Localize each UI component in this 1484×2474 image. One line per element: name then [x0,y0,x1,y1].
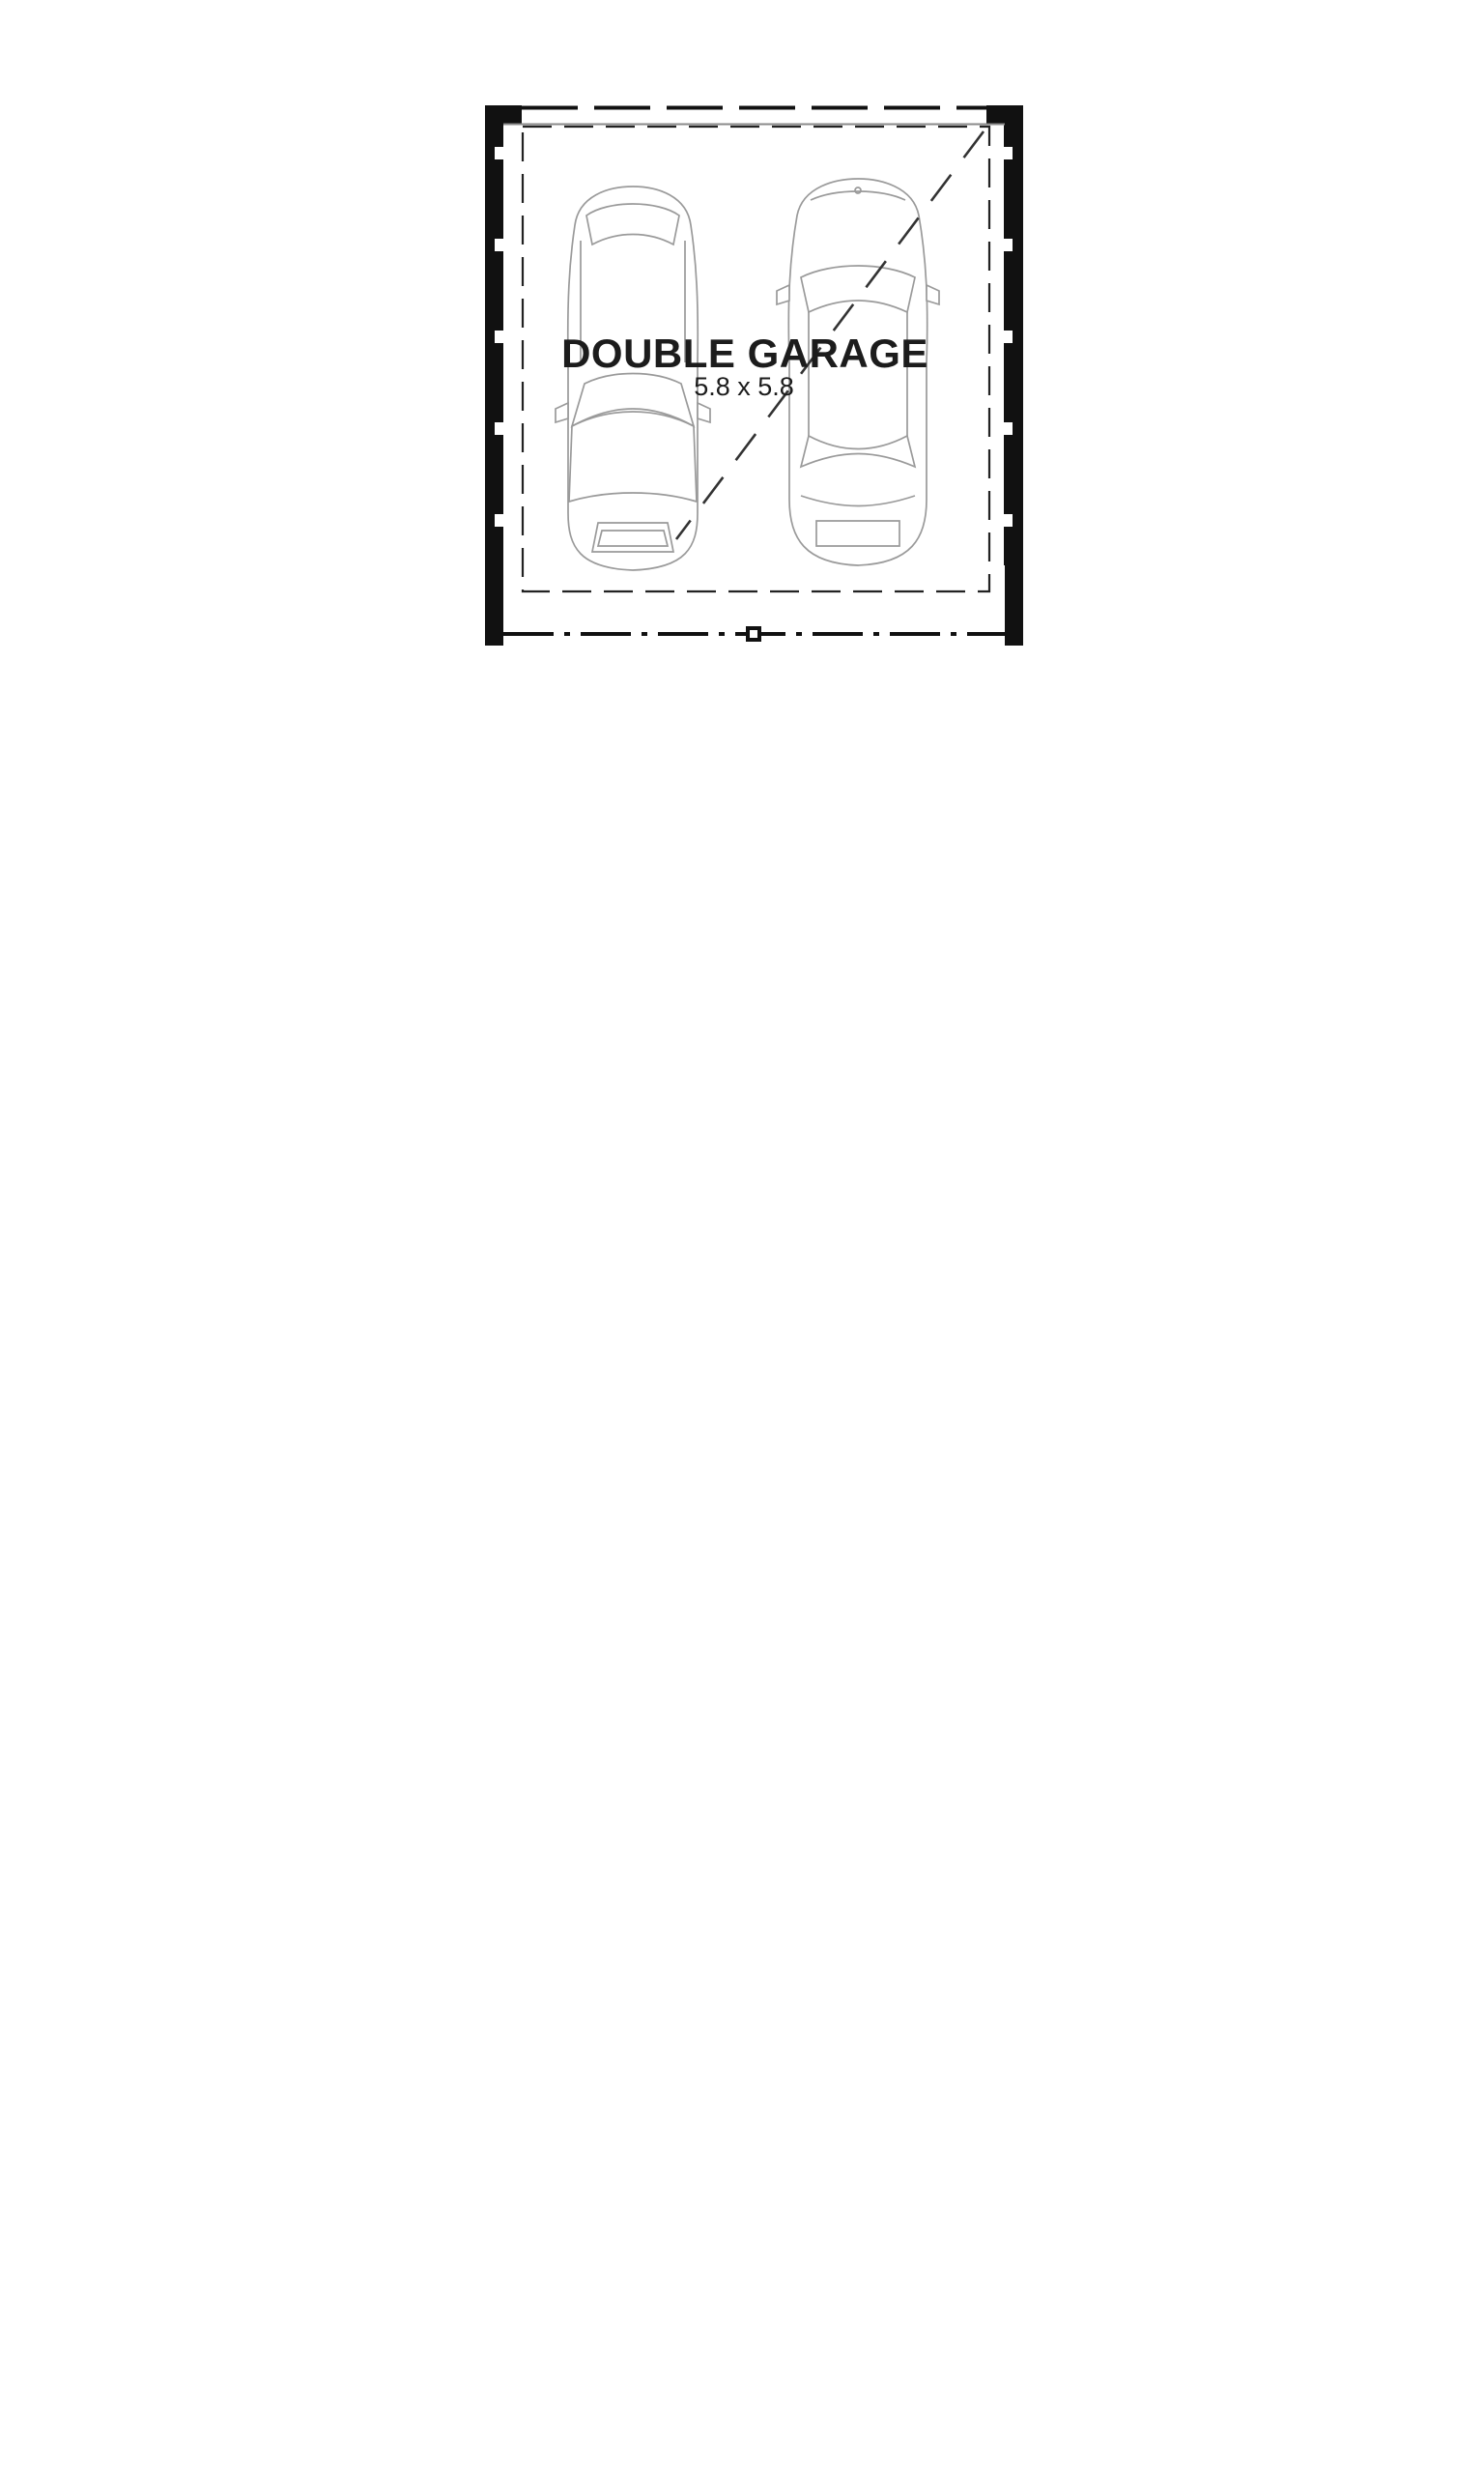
svg-text:5.8 x 5.8: 5.8 x 5.8 [694,372,794,401]
svg-text:DOUBLE GARAGE: DOUBLE GARAGE [561,331,928,376]
